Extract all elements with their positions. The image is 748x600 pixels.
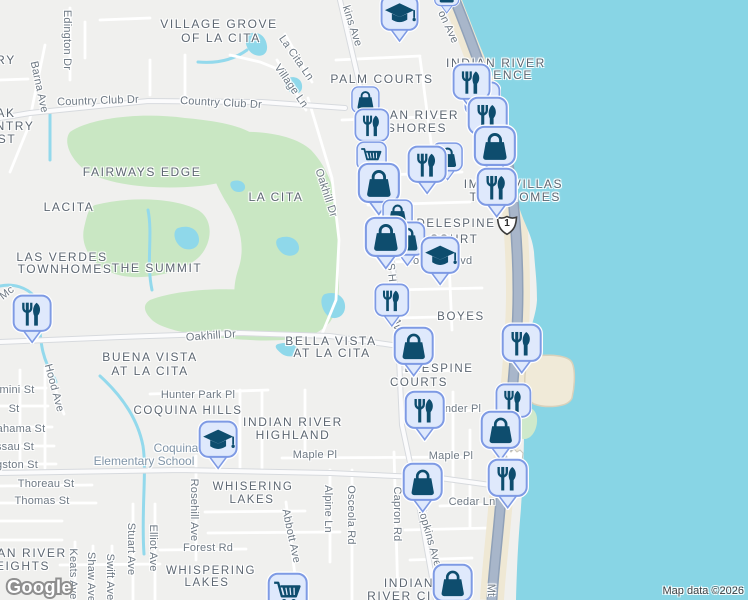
area-label: NTRY (0, 119, 34, 133)
street-label: Maple Pl (429, 450, 473, 462)
restaurant-icon (475, 166, 518, 218)
area-label: RY (0, 53, 16, 67)
marker-shopping-bag[interactable] (392, 325, 435, 377)
marker-shopping-bag[interactable] (431, 562, 474, 600)
route-shield-number: 1 (496, 218, 518, 229)
area-label: AK (0, 106, 16, 120)
area-label: COQUINA HILLS (134, 405, 243, 417)
area-label: EIGHTS (0, 559, 50, 573)
street-label: Osceola Rd (345, 485, 357, 544)
marker-shopping-bag[interactable] (479, 409, 522, 461)
area-label: ST (0, 132, 16, 146)
restaurant-icon (486, 457, 529, 509)
street-label: ahama St (0, 423, 45, 435)
area-label: BUENA VISTA (102, 350, 197, 364)
marker-shopping-bag[interactable] (433, 0, 460, 14)
street-label: Thoreau St (18, 478, 74, 490)
map-canvas[interactable]: 1 VILLAGE GROVEOF LA CITAPALM COURTSINDI… (0, 0, 748, 600)
area-label: OF LA CITA (181, 31, 261, 45)
school-icon (197, 419, 239, 470)
marker-restaurant[interactable] (373, 282, 411, 328)
school-icon (379, 0, 420, 43)
area-label: WHISPERING (166, 565, 256, 577)
street-label: Edington Dr (61, 10, 73, 70)
shopping-cart-icon (266, 571, 309, 600)
shopping-bag-icon (392, 325, 435, 377)
street-label: Thomas St (15, 495, 70, 507)
restaurant-icon (500, 322, 543, 374)
street-label: nder Pl (445, 403, 481, 415)
street-label: mini St (0, 384, 35, 396)
street-label: Elliot Ave (147, 524, 159, 571)
marker-restaurant[interactable] (403, 389, 446, 441)
restaurant-icon (373, 282, 411, 328)
area-label: VILLAGE GROVE (160, 17, 278, 31)
area-label: COURTS (390, 377, 448, 389)
marker-restaurant[interactable] (475, 166, 518, 218)
area-label: THE SUMMIT (112, 261, 203, 275)
street-label: St (9, 403, 20, 415)
street-label: Maple Pl (293, 449, 337, 461)
shopping-bag-icon (433, 0, 460, 14)
marker-shopping-bag[interactable] (363, 215, 409, 270)
area-label: WHISERING (213, 481, 294, 493)
street-label: Forest Rd (183, 542, 233, 554)
marker-restaurant[interactable] (486, 457, 529, 509)
street-label: Shaw Ave (85, 552, 97, 600)
area-label: AT LA CITA (111, 364, 188, 378)
street-label: Alpine Ln (322, 485, 334, 533)
area-label: PALM COURTS (330, 72, 433, 86)
marker-restaurant[interactable] (500, 322, 543, 374)
map-attribution: Map data ©2026 (663, 585, 745, 597)
area-label: VILLAS (513, 177, 563, 191)
street-label: Hunter Park Pl (161, 389, 235, 401)
area-label: LAKES (229, 494, 274, 506)
area-label: BOYES (437, 311, 485, 323)
area-label: TOWNHOMES (18, 262, 113, 276)
street-label: gston St (0, 459, 38, 471)
street-label: Stuart Ave (125, 523, 137, 576)
marker-shopping-cart[interactable] (266, 571, 309, 600)
shopping-bag-icon (479, 409, 522, 461)
school-icon (419, 235, 461, 286)
area-label: LA CITA (249, 190, 304, 204)
area-label: RIVER CIT (367, 589, 441, 600)
restaurant-icon (403, 389, 446, 441)
shopping-bag-icon (363, 215, 409, 270)
area-label: LACITA (44, 200, 95, 214)
street-label: Mt (485, 584, 497, 597)
marker-shopping-bag[interactable] (401, 461, 444, 513)
area-label: AN RIVER (0, 546, 67, 560)
area-label: INDIAN RIVER (243, 415, 343, 429)
marker-school[interactable] (379, 0, 420, 43)
area-label: SHORES (387, 121, 447, 135)
poi-label: Coquina (154, 441, 199, 455)
poi-label: Elementary School (94, 454, 195, 468)
area-label: LAKES (184, 577, 229, 589)
area-label: AT LA CITA (293, 346, 370, 360)
street-label: ssau St (0, 441, 34, 453)
area-label: INDIAN (384, 576, 434, 590)
marker-school[interactable] (197, 419, 239, 470)
google-logo[interactable]: Google (7, 577, 72, 598)
area-label: HIGHLAND (256, 428, 331, 442)
area-label: DELESPINE (417, 218, 496, 230)
shopping-bag-icon (431, 562, 474, 600)
marker-school[interactable] (419, 235, 461, 286)
area-label: IAN RIVER (385, 108, 459, 122)
restaurant-icon (11, 293, 53, 344)
restaurant-icon (406, 144, 448, 195)
street-label: Swift Ave (104, 554, 116, 600)
marker-restaurant[interactable] (406, 144, 448, 195)
shopping-bag-icon (401, 461, 444, 513)
area-label: FAIRWAYS EDGE (83, 165, 202, 179)
marker-restaurant[interactable] (11, 293, 53, 344)
street-label: Rosehill Ave (188, 479, 200, 542)
